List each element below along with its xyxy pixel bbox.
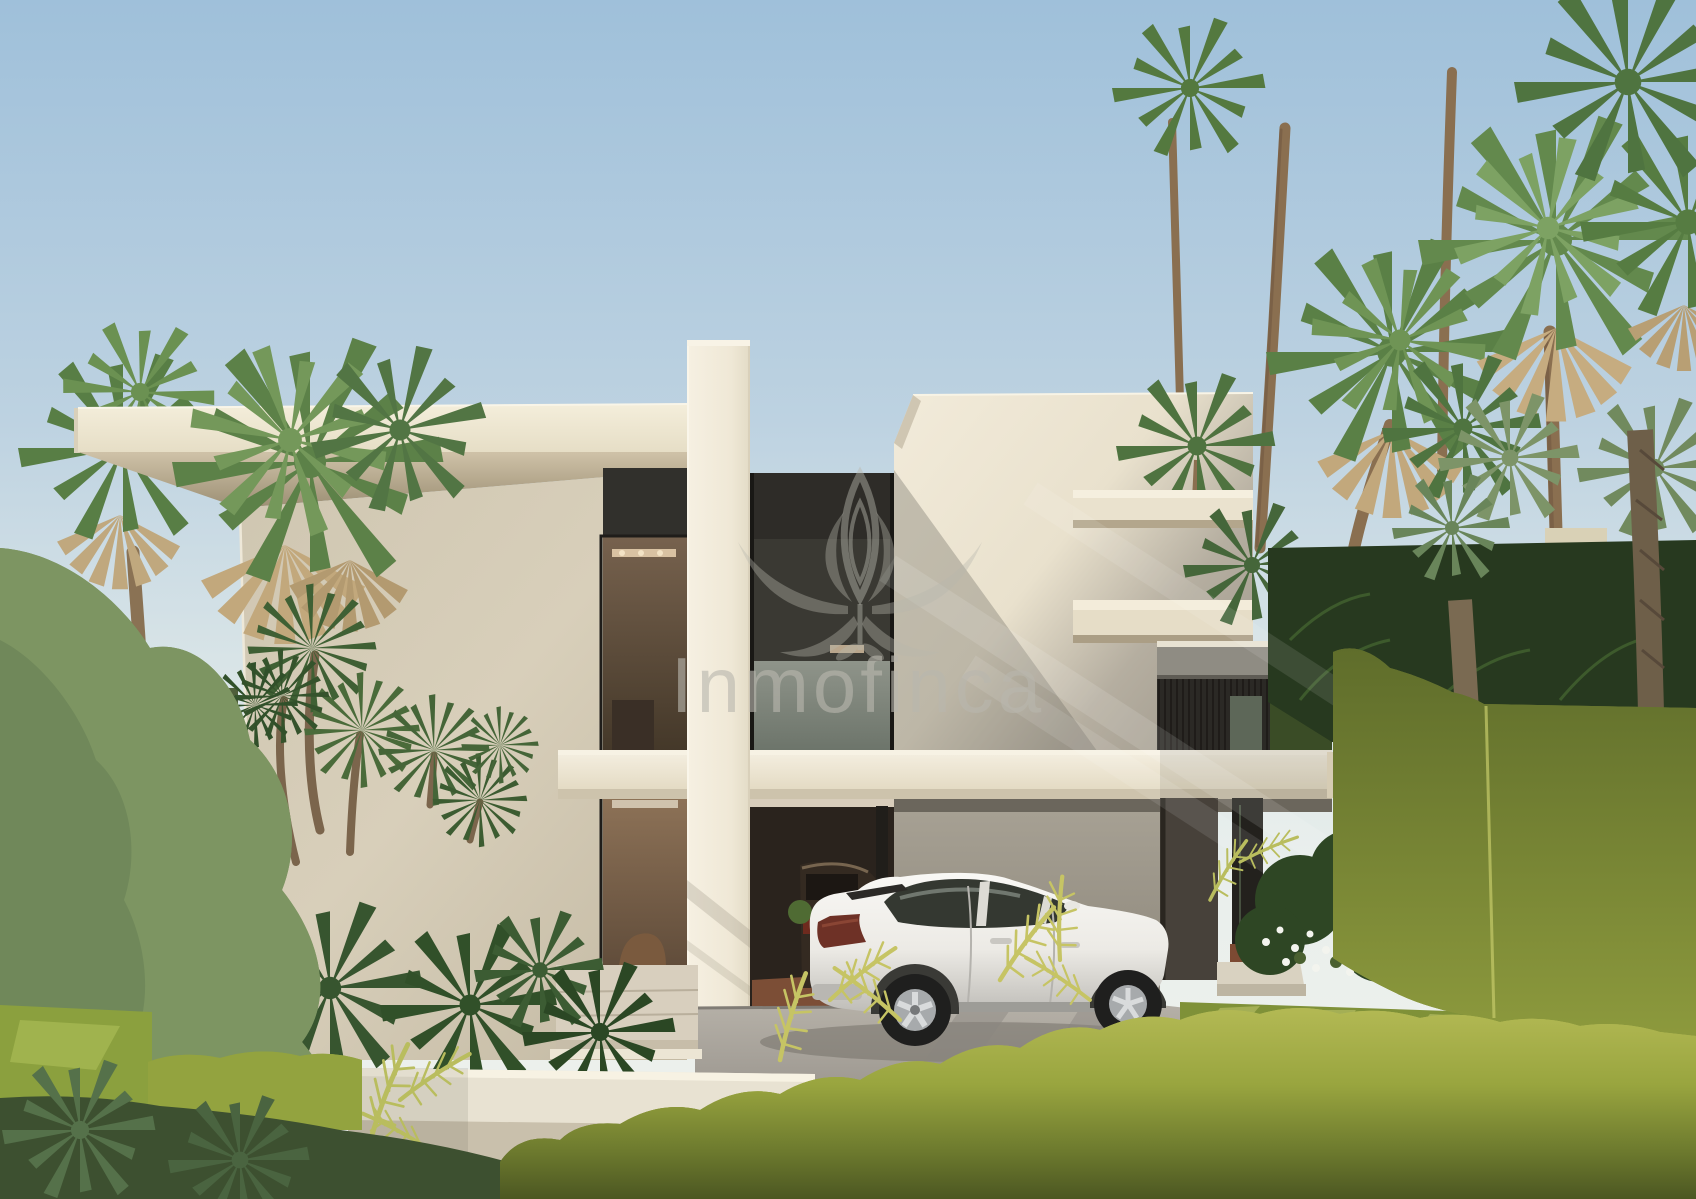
villa-render-canvas: Inmofinca	[0, 0, 1696, 1199]
window-header-dark	[603, 468, 687, 536]
watermark-text: Inmofinca	[671, 641, 1045, 729]
car-mirror	[1064, 901, 1080, 911]
car-taillight	[817, 914, 866, 948]
bay-window-pane	[1230, 696, 1262, 753]
tall-hedge-wall	[1333, 648, 1696, 1042]
property-render-image: Inmofinca	[0, 0, 1696, 1199]
